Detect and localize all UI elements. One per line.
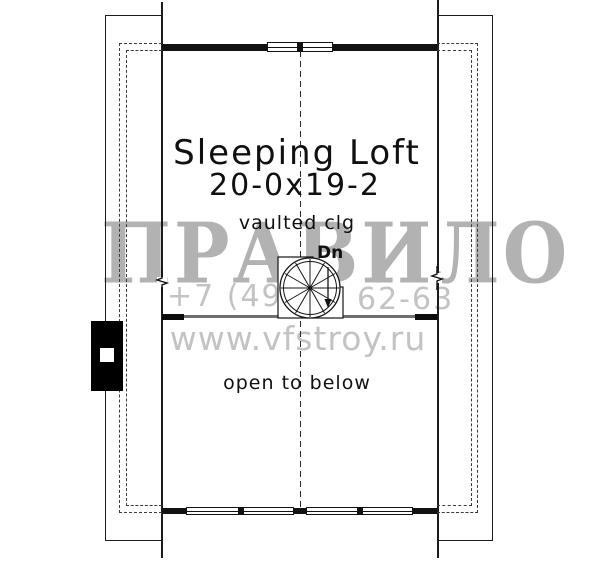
- stair-direction-label: Dn: [317, 243, 343, 263]
- window-glass-line: [244, 511, 293, 512]
- wall-break-icon: [430, 266, 444, 290]
- chimney: [91, 321, 123, 391]
- room-dimensions: 20-0x19-2: [209, 168, 381, 203]
- bottom-window: [186, 507, 239, 515]
- bottom-window: [362, 507, 413, 515]
- watermark-website: www.vfstroy.ru: [170, 319, 427, 358]
- wall-break-icon: [155, 270, 169, 294]
- window-glass-line: [187, 511, 238, 512]
- floor-plan: ПРАВИЛО +7 (495) 62-63 www.vfstroy.ru: [0, 0, 600, 569]
- bottom-wall-segment: [412, 508, 437, 514]
- bottom-window: [306, 507, 359, 515]
- loft-edge-rail-cap-left: [162, 314, 184, 320]
- loft-edge-rail-cap-right: [415, 314, 437, 320]
- open-to-below-label: open to below: [223, 372, 371, 394]
- chimney-flue: [100, 348, 114, 362]
- bottom-wall-segment: [293, 508, 306, 514]
- window-glass-line: [307, 511, 358, 512]
- ceiling-note: vaulted clg: [239, 212, 355, 234]
- top-window-mullion: [297, 43, 303, 51]
- bottom-wall-segment: [162, 508, 187, 514]
- window-glass-line: [363, 511, 412, 512]
- room-label: Sleeping Loft: [173, 133, 421, 173]
- bottom-window: [243, 507, 294, 515]
